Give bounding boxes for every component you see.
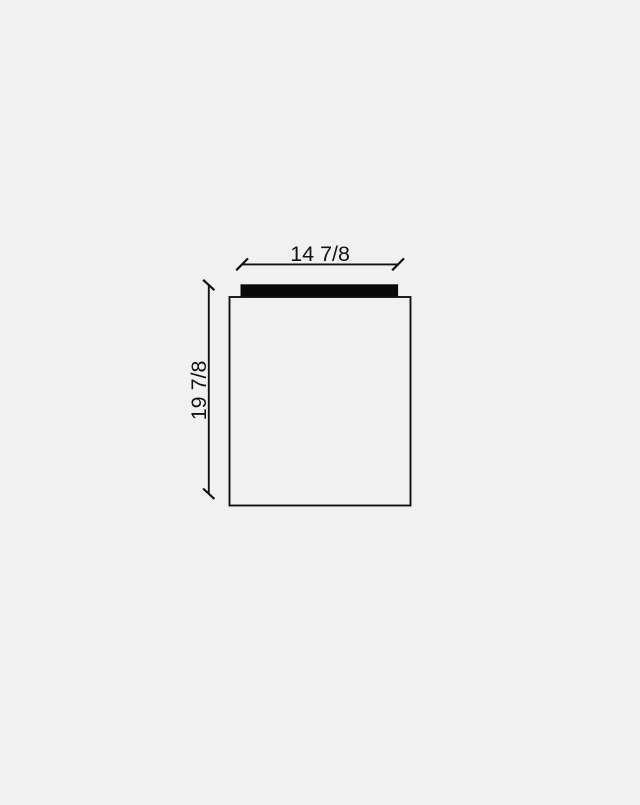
svg-text:19 7/8: 19 7/8 (187, 360, 211, 420)
svg-text:14 7/8: 14 7/8 (290, 242, 350, 266)
